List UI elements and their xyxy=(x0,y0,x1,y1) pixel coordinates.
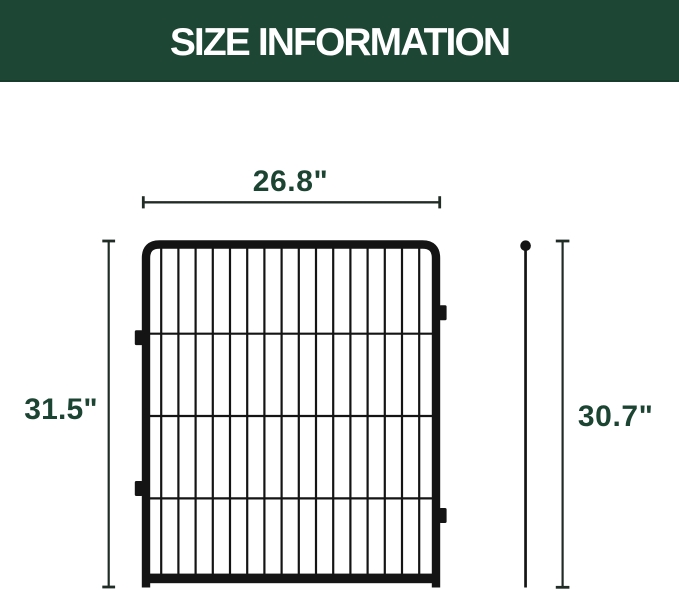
svg-text:31.5": 31.5" xyxy=(24,393,98,426)
svg-text:26.8": 26.8" xyxy=(253,165,329,198)
svg-text:30.7": 30.7" xyxy=(578,400,654,433)
